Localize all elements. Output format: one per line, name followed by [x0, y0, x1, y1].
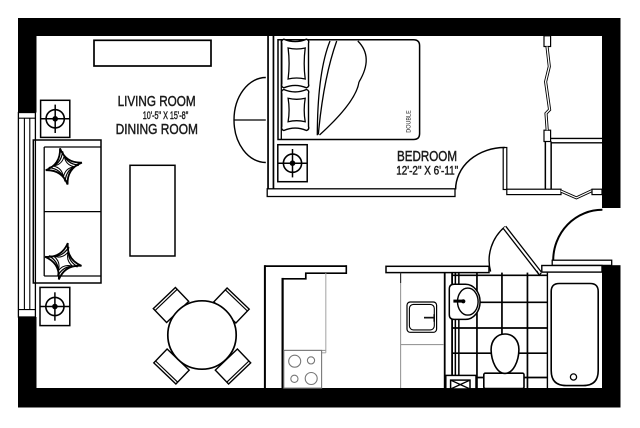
svg-text:10'-5" X 15'-8": 10'-5" X 15'-8": [143, 110, 189, 122]
svg-text:12'-2" X 6'-11": 12'-2" X 6'-11": [396, 164, 458, 178]
svg-text:LIVING ROOM: LIVING ROOM: [118, 94, 196, 110]
svg-text:DINING ROOM: DINING ROOM: [116, 122, 198, 138]
svg-text:DOUBLE: DOUBLE: [407, 110, 413, 133]
